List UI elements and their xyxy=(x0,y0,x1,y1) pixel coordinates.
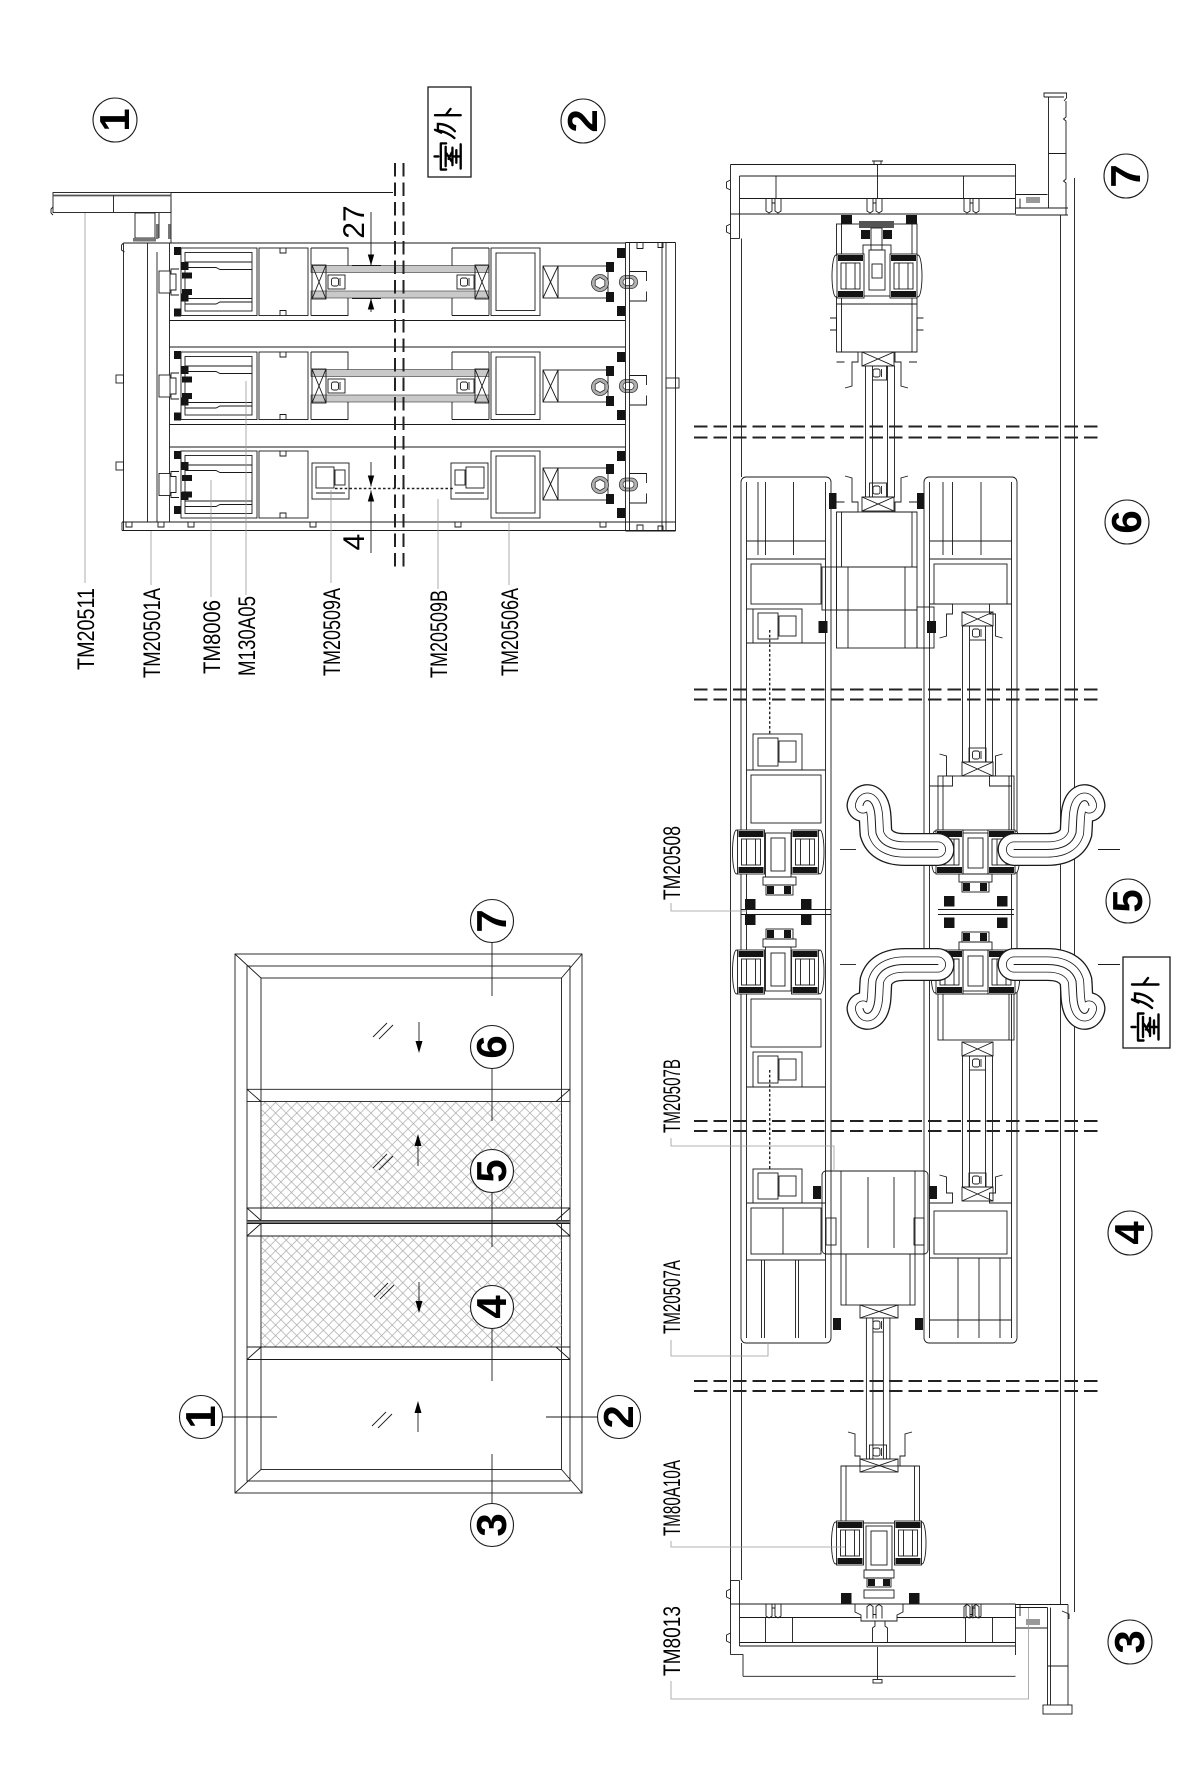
svg-text:TM20509B: TM20509B xyxy=(426,590,453,678)
svg-text:1: 1 xyxy=(91,108,138,131)
svg-text:7: 7 xyxy=(1102,164,1149,187)
svg-text:TM20501A: TM20501A xyxy=(139,588,166,678)
svg-text:5: 5 xyxy=(468,1159,515,1182)
svg-text:7: 7 xyxy=(468,909,515,932)
svg-text:TM20511: TM20511 xyxy=(73,588,100,670)
svg-text:4: 4 xyxy=(1106,1221,1153,1245)
svg-text:1: 1 xyxy=(177,1405,224,1428)
svg-text:M130A05: M130A05 xyxy=(234,596,261,676)
svg-text:TM20508: TM20508 xyxy=(659,826,686,900)
svg-text:TM20509A: TM20509A xyxy=(319,588,346,676)
svg-text:TM20507B: TM20507B xyxy=(659,1059,686,1133)
svg-text:TM20507A: TM20507A xyxy=(659,1260,686,1334)
svg-text:6: 6 xyxy=(468,1035,515,1058)
svg-text:TM20506A: TM20506A xyxy=(497,588,524,676)
svg-text:27: 27 xyxy=(338,205,371,238)
svg-text:3: 3 xyxy=(1106,1630,1153,1653)
svg-text:5: 5 xyxy=(1104,889,1151,912)
svg-text:TM8006: TM8006 xyxy=(199,600,226,674)
svg-text:4: 4 xyxy=(338,534,371,551)
svg-text:TM80A10A: TM80A10A xyxy=(659,1460,686,1536)
svg-text:2: 2 xyxy=(559,109,606,132)
svg-text:TM8013: TM8013 xyxy=(659,1606,686,1676)
svg-text:4: 4 xyxy=(468,1295,515,1319)
svg-text:3: 3 xyxy=(468,1513,515,1536)
svg-text:2: 2 xyxy=(595,1405,642,1428)
svg-text:6: 6 xyxy=(1103,510,1150,533)
